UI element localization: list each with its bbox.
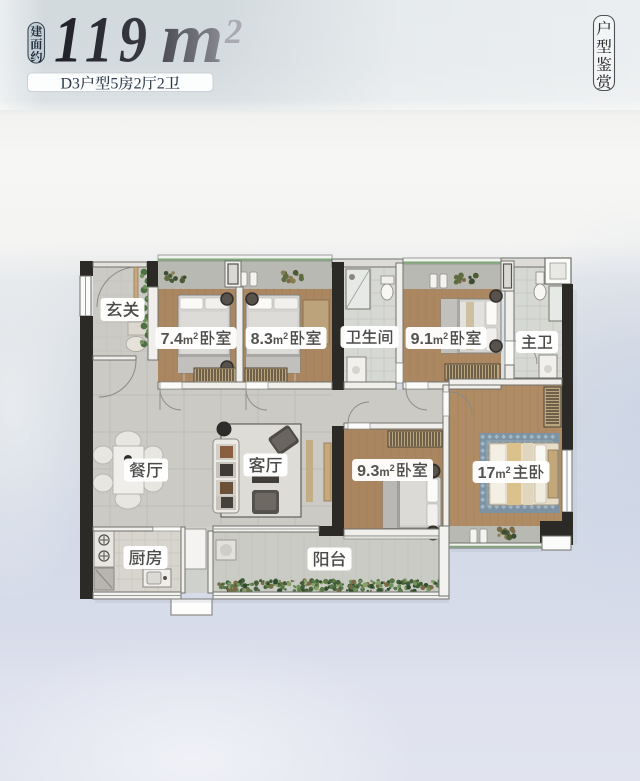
- svg-text:2: 2: [134, 76, 142, 93]
- svg-text:9.1m2: 9.1m2: [411, 331, 449, 348]
- svg-text:3: 3: [72, 76, 80, 93]
- svg-text:7.4m2: 7.4m2: [161, 331, 199, 348]
- svg-text:8.3m2: 8.3m2: [251, 331, 289, 348]
- svg-text:5: 5: [110, 76, 118, 93]
- svg-text:9.3m2: 9.3m2: [357, 463, 395, 480]
- svg-text:D: D: [61, 76, 73, 93]
- svg-text:2: 2: [157, 76, 165, 93]
